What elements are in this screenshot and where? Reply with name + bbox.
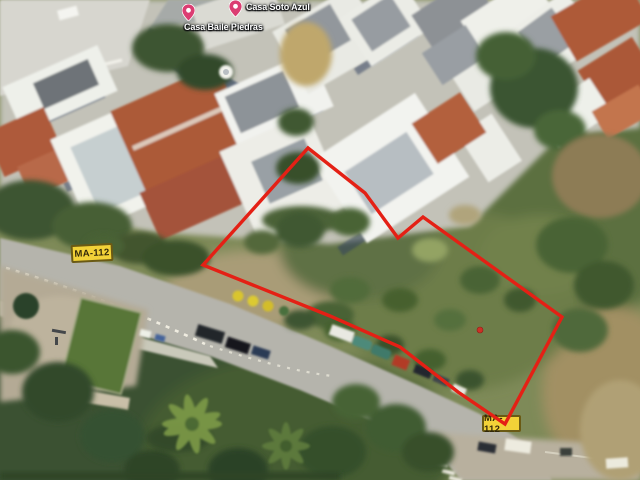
lodging-pin-icon[interactable]: [229, 0, 242, 17]
road-badge-label: MA-112: [484, 413, 519, 435]
road-badge-ma112-right: MA-112: [482, 415, 521, 432]
lodging-pin-icon[interactable]: [182, 4, 195, 21]
road-badge-label: MA-112: [74, 247, 110, 260]
place-label-casa-baile-piedras[interactable]: Casa Baile Piedras: [184, 22, 263, 32]
place-label-casa-soto-azul[interactable]: Casa Soto Azul: [246, 2, 310, 12]
map-viewport[interactable]: MA-112 MA-112 Casa Baile Piedras Casa So…: [0, 0, 640, 480]
satellite-imagery: [0, 0, 640, 480]
road-badge-ma112-left: MA-112: [71, 243, 114, 263]
